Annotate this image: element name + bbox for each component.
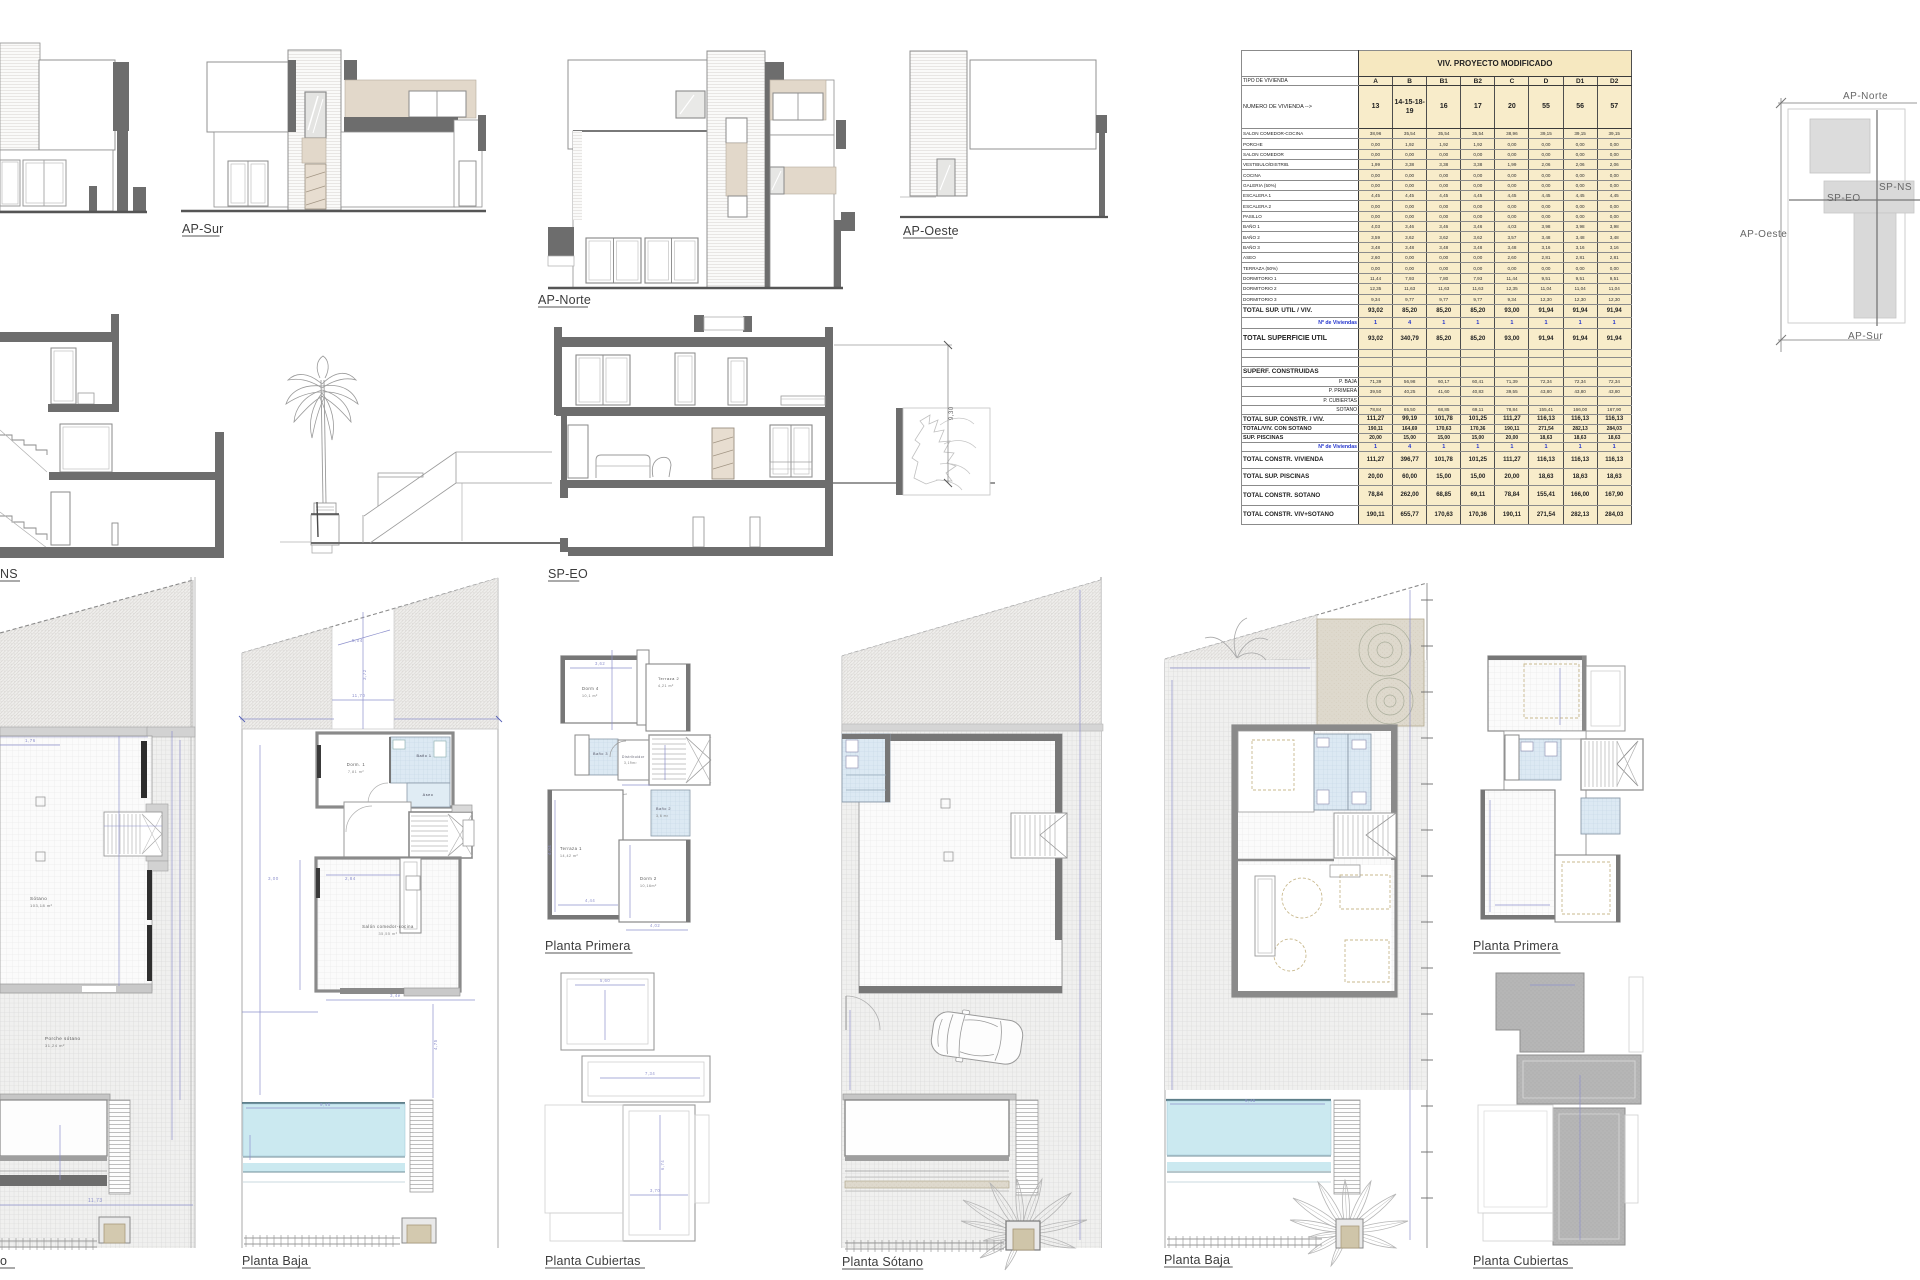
svg-text:Planta Baja: Planta Baja — [242, 1254, 308, 1268]
svg-text:3,00: 3,00 — [268, 876, 279, 881]
svg-text:Porche sótano: Porche sótano — [45, 1036, 81, 1041]
svg-text:4,02: 4,02 — [650, 923, 660, 928]
svg-text:11,70: 11,70 — [352, 693, 365, 698]
svg-text:SP-NS: SP-NS — [1879, 182, 1912, 193]
svg-text:3,70: 3,70 — [650, 1188, 660, 1193]
svg-text:3,19m²: 3,19m² — [624, 761, 637, 765]
svg-text:3,4e: 3,4e — [390, 993, 401, 998]
svg-text:35,55 m²: 35,55 m² — [379, 932, 398, 936]
svg-text:Planta Primera: Planta Primera — [545, 939, 630, 953]
svg-text:Baño 3: Baño 3 — [593, 752, 608, 756]
svg-text:10,1 m²: 10,1 m² — [582, 694, 598, 698]
svg-text:9,45: 9,45 — [1245, 1098, 1256, 1103]
svg-text:o: o — [0, 1254, 7, 1268]
svg-text:9,30: 9,30 — [949, 406, 955, 420]
svg-text:7,81 m²: 7,81 m² — [348, 770, 365, 774]
svg-text:11,73: 11,73 — [88, 1198, 103, 1204]
svg-text:Dorm 2: Dorm 2 — [640, 876, 657, 881]
svg-text:1,76: 1,76 — [25, 738, 36, 743]
svg-text:14,42 m²: 14,42 m² — [560, 854, 578, 858]
svg-text:Distribuidor: Distribuidor — [622, 755, 645, 759]
svg-text:Planta Baja: Planta Baja — [1164, 1253, 1230, 1267]
svg-text:7,34: 7,34 — [645, 1071, 655, 1076]
svg-text:31,24 m²: 31,24 m² — [45, 1043, 65, 1048]
svg-text:Terraza 1: Terraza 1 — [560, 846, 582, 851]
svg-text:Dorm. 1: Dorm. 1 — [347, 762, 366, 767]
svg-text:Dorm 4: Dorm 4 — [582, 686, 599, 691]
svg-text:Terraza 2: Terraza 2 — [658, 676, 679, 681]
svg-text:Baño 1: Baño 1 — [416, 754, 431, 758]
svg-text:Planta Cubiertas: Planta Cubiertas — [1473, 1254, 1569, 1268]
svg-text:Baño 2: Baño 2 — [656, 807, 671, 811]
svg-text:5,60: 5,60 — [600, 978, 610, 983]
svg-text:3,72: 3,72 — [362, 669, 367, 680]
svg-text:5,04: 5,04 — [352, 638, 363, 643]
svg-text:AP-Oeste: AP-Oeste — [903, 224, 959, 238]
svg-text:Planta Sótano: Planta Sótano — [842, 1255, 923, 1269]
svg-text:Planta Primera: Planta Primera — [1473, 939, 1558, 953]
svg-text:Aseo: Aseo — [423, 793, 434, 797]
svg-text:AP-Sur: AP-Sur — [182, 222, 224, 236]
svg-text:AP-Oeste: AP-Oeste — [1740, 229, 1787, 240]
svg-text:4,44: 4,44 — [585, 898, 595, 903]
svg-text:AP-Sur: AP-Sur — [1848, 331, 1883, 342]
svg-text:3,6 m²: 3,6 m² — [656, 814, 669, 818]
svg-text:Planta Cubiertas: Planta Cubiertas — [545, 1254, 641, 1268]
svg-text:3,62: 3,62 — [595, 661, 605, 666]
svg-text:9,45: 9,45 — [320, 1102, 331, 1107]
svg-text:4,04: 4,04 — [547, 845, 552, 855]
svg-text:SP-EO: SP-EO — [548, 567, 588, 581]
svg-text:103,18 m²: 103,18 m² — [30, 903, 53, 908]
svg-text:10,16m²: 10,16m² — [640, 884, 657, 888]
svg-text:AP-Norte: AP-Norte — [1843, 91, 1888, 102]
svg-text:Salón comedor-cocina: Salón comedor-cocina — [362, 924, 414, 929]
svg-text:SP-EO: SP-EO — [1827, 193, 1861, 204]
svg-text:AP-Norte: AP-Norte — [538, 293, 591, 307]
svg-text:4,21 m²: 4,21 m² — [658, 684, 674, 688]
svg-text:2,84: 2,84 — [345, 876, 356, 881]
svg-text:4,75: 4,75 — [433, 1039, 438, 1050]
svg-text:NS: NS — [0, 567, 18, 581]
svg-text:6,74: 6,74 — [660, 1160, 665, 1170]
svg-text:Sótano: Sótano — [30, 896, 47, 901]
